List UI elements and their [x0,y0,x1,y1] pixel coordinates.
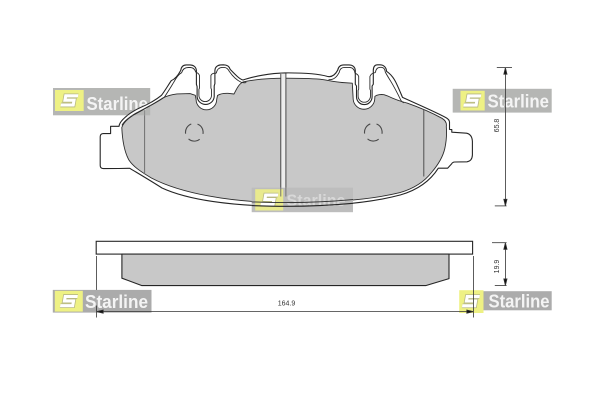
svg-text:164.9: 164.9 [278,301,296,308]
svg-text:Starline: Starline [489,292,550,312]
svg-text:19.9: 19.9 [494,260,501,274]
svg-text:Starline: Starline [85,292,148,312]
svg-text:Starline: Starline [488,92,550,112]
svg-text:65.8: 65.8 [494,119,501,133]
